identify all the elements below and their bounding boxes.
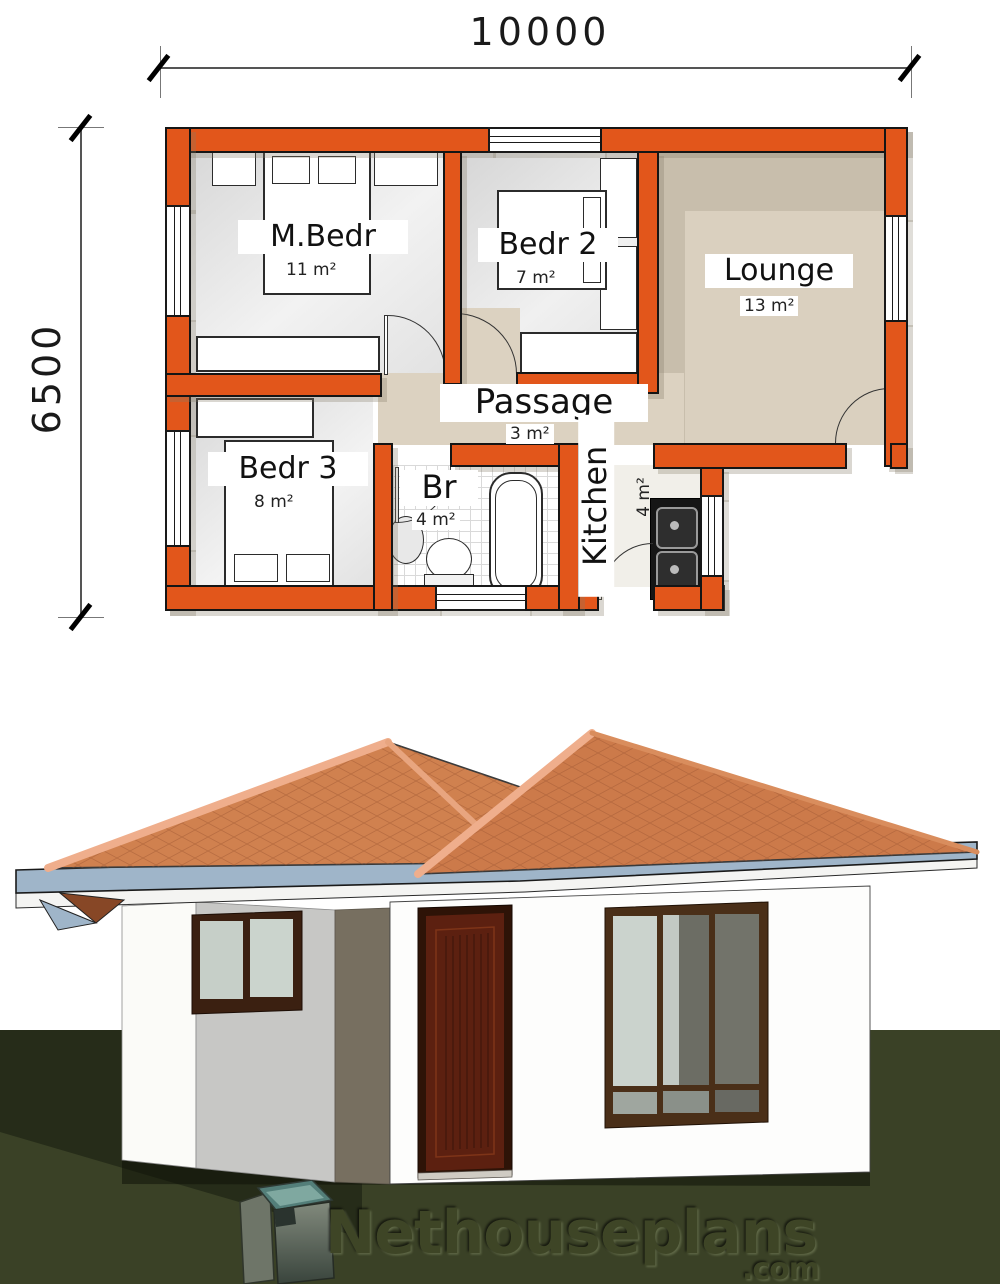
window-right-glass-highlight (663, 915, 679, 1085)
door-leaf-mbedr (384, 315, 388, 375)
room-area-bedr3: 8 m² (250, 492, 298, 512)
window-lounge (884, 215, 908, 322)
wall-segment (600, 127, 908, 153)
window-kitchen (700, 495, 724, 577)
extension-line (160, 46, 161, 98)
wardrobe-master (196, 336, 380, 372)
dimension-height-label: 6500 (25, 298, 69, 458)
wall-segment (165, 585, 437, 611)
window-bathroom (435, 585, 527, 611)
window-right-glass (715, 914, 759, 1084)
room-area-mbedr: 11 m² (282, 260, 340, 280)
bathtub-inner (495, 480, 537, 590)
room-label-passage: Passage (440, 384, 648, 422)
room-label-bedr2: Bedr 2 (478, 228, 618, 262)
wall-segment (165, 127, 491, 153)
window-right-glass (715, 1090, 759, 1112)
room-area-bedr2: 7 m² (512, 268, 560, 288)
window-left-1 (165, 205, 191, 317)
faucet-dot (670, 565, 679, 574)
wall-segment (373, 443, 393, 611)
wall-segment (443, 151, 462, 385)
dimension-line-left (80, 127, 82, 619)
wall-segment (653, 443, 847, 469)
wall-segment (450, 443, 562, 467)
room-label-bedr3: Bedr 3 (208, 452, 368, 486)
window-right-glass (613, 916, 657, 1086)
dimension-line-top (160, 67, 912, 69)
room-area-kitchen: 4 m² (634, 453, 654, 541)
cube-left-slab (240, 1192, 274, 1284)
wall-segment (165, 127, 191, 209)
window-left-2 (165, 430, 191, 547)
watermark: Nethouseplans .com (0, 1150, 1000, 1284)
room-label-lounge: Lounge (705, 254, 853, 288)
floor-lounge-shade-top (659, 153, 884, 211)
window-right-glass (613, 1092, 657, 1114)
pillow (234, 554, 278, 582)
entry-door (426, 913, 504, 1171)
room-label-mbedr: M.Bedr (238, 220, 408, 254)
dresser (374, 150, 438, 186)
nightstand (212, 150, 256, 186)
logo-cube-icon (238, 1180, 338, 1284)
window-left-glass (250, 919, 293, 997)
dimension-width-label: 10000 (445, 10, 635, 54)
wall-segment (884, 127, 908, 217)
room-area-lounge: 13 m² (740, 296, 798, 316)
wall-segment (700, 467, 724, 497)
room-label-bathroom: Br (400, 470, 478, 506)
window-top (488, 127, 602, 153)
wall-segment (637, 151, 659, 394)
floor-passage-doorway2 (380, 373, 445, 399)
wall-segment (165, 373, 382, 397)
desk-bedr2 (520, 332, 638, 374)
brand-tld: .com (742, 1252, 819, 1284)
room-area-passage: 3 m² (506, 424, 554, 444)
window-left-glass (200, 921, 243, 999)
wall-segment (890, 443, 908, 469)
extension-line (911, 46, 912, 98)
wardrobe-bedr3 (196, 398, 314, 438)
room-area-bathroom: 4 m² (412, 510, 460, 530)
corner-pillar (122, 902, 196, 1168)
roof-right (418, 733, 977, 874)
page: 10000 6500 (0, 0, 1000, 1284)
door-leaf-bathroom (395, 467, 399, 523)
corner-shade-band (335, 908, 390, 1184)
pillow (272, 156, 310, 184)
floor-plan: 10000 6500 (0, 0, 1000, 660)
room-label-kitchen: Kitchen (578, 415, 614, 597)
pillow (318, 156, 356, 184)
window-right-glass (663, 1091, 709, 1113)
pillow (286, 554, 330, 582)
cube-notch (274, 1207, 296, 1227)
wall-segment (700, 575, 724, 611)
faucet-dot (670, 521, 679, 530)
